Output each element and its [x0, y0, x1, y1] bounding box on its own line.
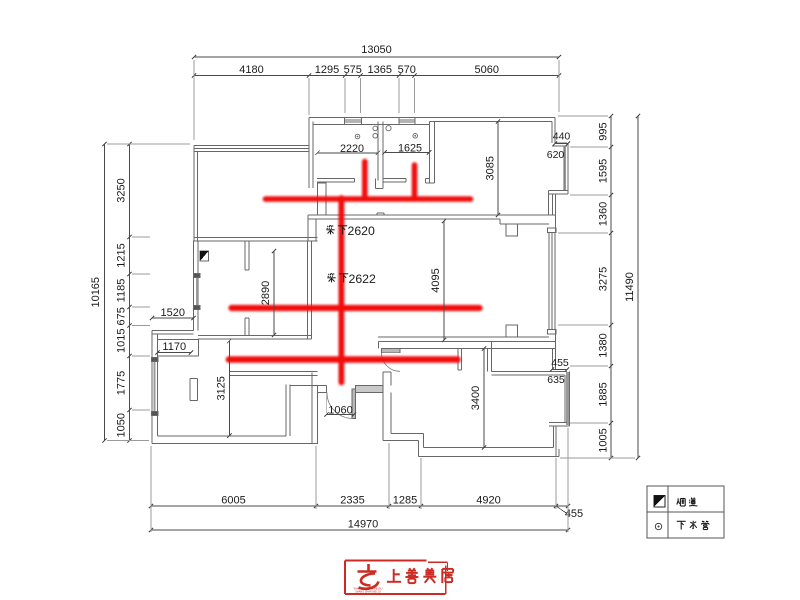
svg-text:3400: 3400	[470, 386, 482, 410]
svg-text:1520: 1520	[161, 307, 185, 319]
svg-text:10165: 10165	[90, 277, 102, 308]
svg-text:1050: 1050	[115, 413, 127, 437]
svg-text:1775: 1775	[115, 371, 127, 395]
svg-text:2335: 2335	[340, 495, 364, 507]
svg-text:1625: 1625	[398, 143, 422, 155]
svg-text:3085: 3085	[485, 156, 497, 180]
svg-text:3125: 3125	[215, 376, 227, 400]
svg-text:575: 575	[344, 64, 362, 76]
svg-text:1005: 1005	[597, 428, 609, 452]
svg-text:1885: 1885	[597, 382, 609, 406]
svg-text:455: 455	[565, 508, 583, 520]
svg-text:5060: 5060	[475, 64, 499, 76]
svg-text:13050: 13050	[361, 44, 392, 56]
svg-text:1215: 1215	[115, 243, 127, 267]
svg-text:14970: 14970	[348, 519, 379, 531]
svg-text:4920: 4920	[476, 495, 500, 507]
svg-text:1295: 1295	[315, 64, 339, 76]
svg-text:2220: 2220	[340, 143, 364, 155]
svg-text:1360: 1360	[597, 202, 609, 226]
svg-text:1170: 1170	[162, 341, 186, 353]
svg-text:11490: 11490	[624, 272, 636, 302]
svg-text:2620: 2620	[348, 224, 376, 238]
svg-text:1185: 1185	[115, 279, 127, 303]
svg-text:3275: 3275	[597, 267, 609, 291]
svg-text:4180: 4180	[239, 64, 263, 76]
svg-text:440: 440	[553, 131, 571, 143]
svg-text:3250: 3250	[115, 178, 127, 202]
svg-text:570: 570	[398, 64, 416, 76]
svg-text:635: 635	[547, 374, 565, 386]
svg-text:675: 675	[115, 307, 127, 325]
svg-text:2622: 2622	[349, 272, 377, 286]
svg-text:1365: 1365	[368, 64, 392, 76]
svg-text:1015: 1015	[115, 329, 127, 353]
svg-text:4095: 4095	[430, 268, 442, 292]
svg-text:2890: 2890	[260, 281, 272, 305]
svg-text:1595: 1595	[597, 159, 609, 183]
svg-text:1285: 1285	[393, 495, 417, 507]
svg-text:620: 620	[547, 149, 565, 161]
svg-text:SHANG SHAN MEI JU: SHANG SHAN MEI JU	[355, 590, 381, 593]
svg-text:1060: 1060	[328, 405, 352, 417]
svg-text:995: 995	[597, 122, 609, 140]
svg-text:1380: 1380	[597, 333, 609, 357]
svg-text:6005: 6005	[221, 495, 245, 507]
svg-text:455: 455	[551, 357, 569, 369]
